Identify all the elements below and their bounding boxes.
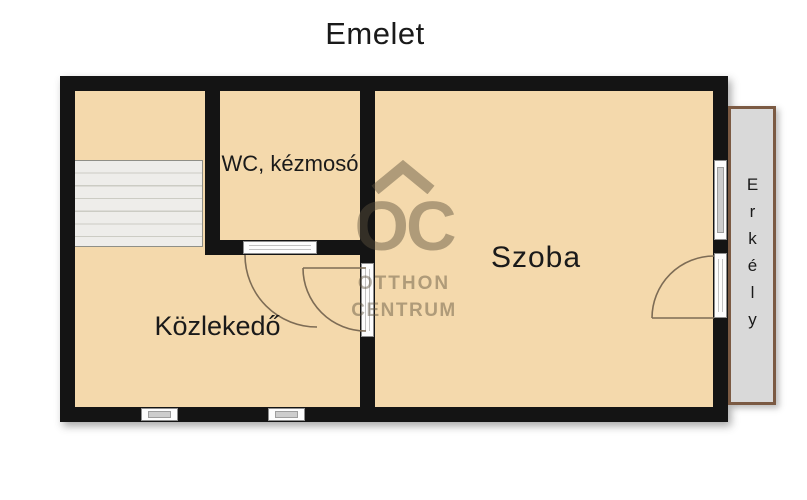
room-label-kozlekedo: Közlekedő bbox=[115, 311, 320, 342]
door-swing-arcs bbox=[0, 0, 807, 500]
room-label-szoba: Szoba bbox=[436, 241, 636, 275]
room-label-wc: WC, kézmosó bbox=[210, 151, 370, 177]
balcony-door-arc bbox=[652, 256, 714, 318]
floorplan-canvas: Emelet Erkély WC, kézmosó Szoba Közleked… bbox=[0, 0, 807, 500]
